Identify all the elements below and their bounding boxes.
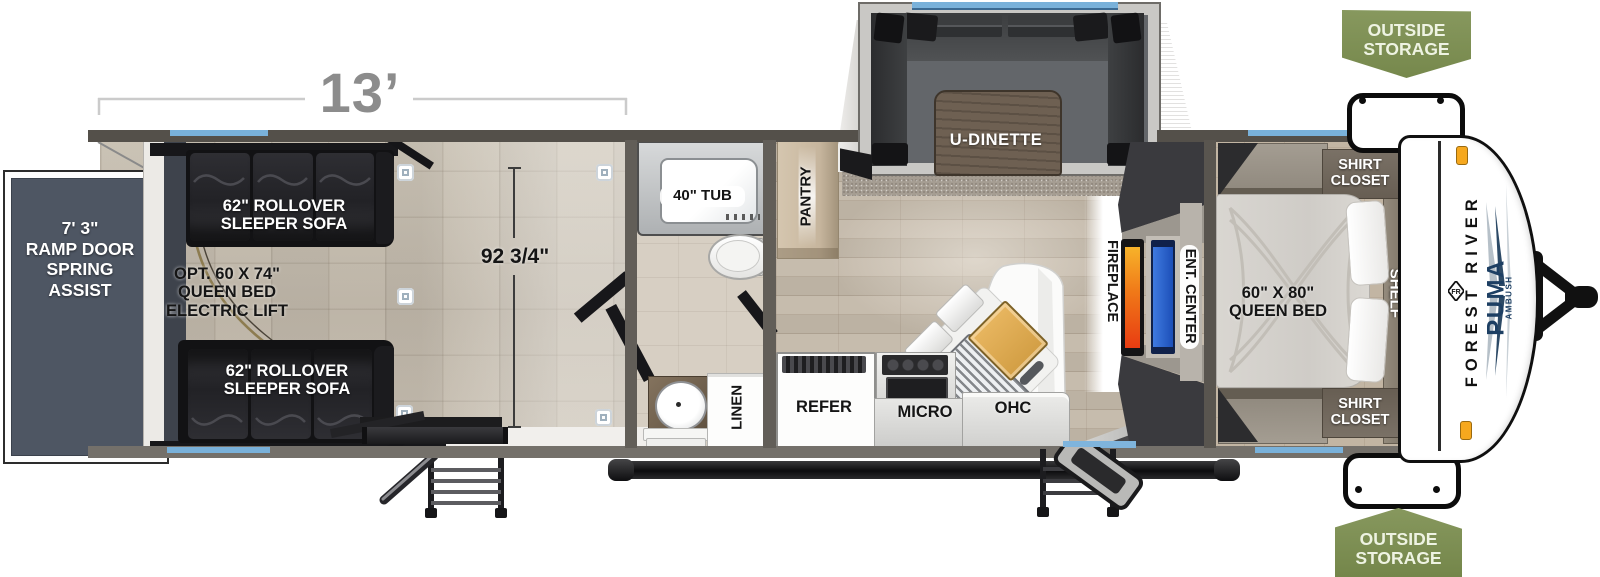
svg-text:FR: FR xyxy=(1451,289,1460,296)
